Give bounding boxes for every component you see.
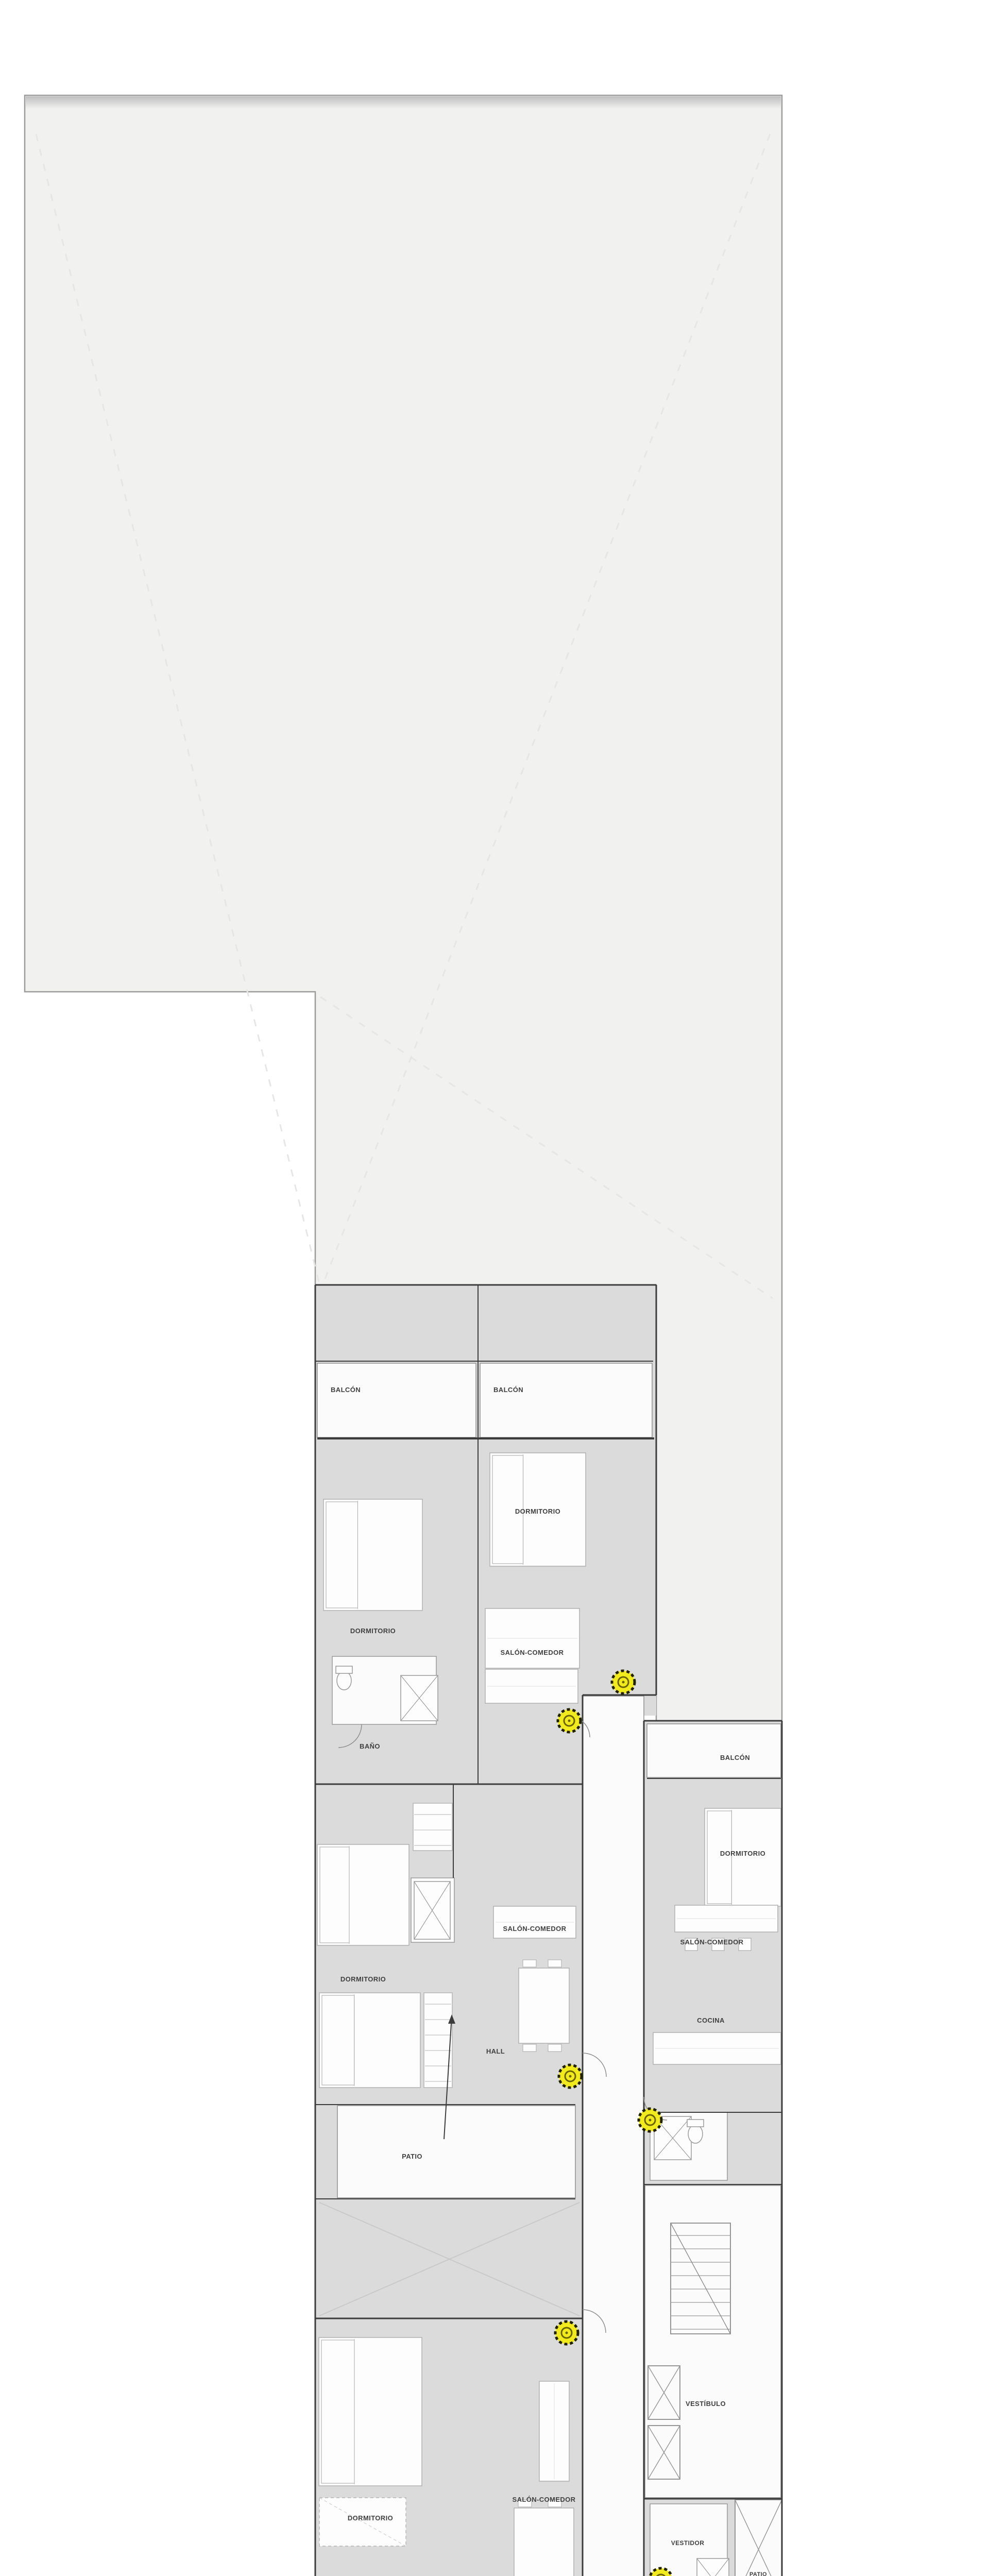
floor-plan-sheet: BALCÓNBALCÓNDORMITORIODORMITORIOSALÓN-CO… [0, 0, 989, 2576]
room-label: BALCÓN [493, 1386, 523, 1394]
dining-table [514, 2508, 574, 2576]
closet [413, 1803, 452, 1851]
plan-marker-icon [612, 1671, 635, 1693]
open-area [337, 2106, 575, 2198]
room-label: SALÓN-COMEDOR [503, 1925, 567, 1933]
chair [548, 2044, 561, 2052]
bed [319, 2337, 422, 2486]
room-label: BALCÓN [720, 1754, 750, 1761]
room-label: BALCÓN [331, 1386, 361, 1394]
plan-marker-dot [622, 1681, 625, 1684]
room-label: DORMITORIO [348, 2514, 393, 2522]
plan-marker-dot [569, 2075, 572, 2078]
plan-marker-dot [566, 2332, 568, 2334]
room-label: PATIO [749, 2571, 767, 2576]
dining-table [519, 1968, 569, 2043]
room-label: VESTIDOR [671, 2539, 705, 2547]
shower-tray [697, 2558, 729, 2576]
toilet-tank [336, 1666, 352, 1673]
chair [523, 2044, 536, 2052]
plan-marker-icon [555, 2321, 578, 2344]
chair [523, 1960, 536, 1967]
bed [323, 1499, 422, 1611]
open-area [317, 1363, 476, 1437]
plan-marker-icon [639, 2109, 661, 2131]
bed [705, 1808, 781, 1906]
room-label: COCINA [697, 2016, 725, 2024]
plan-marker-dot [649, 2119, 652, 2122]
plan-marker-icon [559, 2065, 582, 2088]
room-label: DORMITORIO [350, 1627, 396, 1635]
room-label: DORMITORIO [720, 1850, 765, 1857]
toilet [337, 1671, 351, 1690]
room-label: DORMITORIO [515, 1507, 560, 1515]
open-area [480, 1363, 652, 1437]
plan-layers: BALCÓNBALCÓNDORMITORIODORMITORIOSALÓN-CO… [25, 95, 782, 2576]
room-label: VESTÍBULO [686, 2400, 726, 2408]
floor-plan: BALCÓNBALCÓNDORMITORIODORMITORIOSALÓN-CO… [0, 0, 989, 2576]
terrace-top-shade [26, 96, 781, 109]
chair [548, 1960, 561, 1967]
open-area [647, 1724, 781, 1777]
room-label: HALL [486, 2047, 505, 2055]
room-label: DORMITORIO [340, 1975, 386, 1983]
room-label: PATIO [402, 2153, 422, 2160]
wardrobe-dashed [319, 2498, 406, 2546]
room-label: SALÓN-COMEDOR [513, 2496, 576, 2503]
bed [319, 1993, 420, 2088]
room-label: SALÓN-COMEDOR [680, 1938, 744, 1946]
toilet [688, 2125, 703, 2143]
open-area [583, 1696, 644, 2576]
plan-marker-icon [558, 1709, 581, 1732]
room-label: BAÑO [360, 1742, 380, 1750]
plan-marker-dot [568, 1720, 571, 1722]
room-label: SALÓN-COMEDOR [501, 1649, 564, 1656]
shaft-box [735, 2500, 782, 2576]
toilet-tank [687, 2120, 704, 2127]
bed [317, 1844, 409, 1945]
